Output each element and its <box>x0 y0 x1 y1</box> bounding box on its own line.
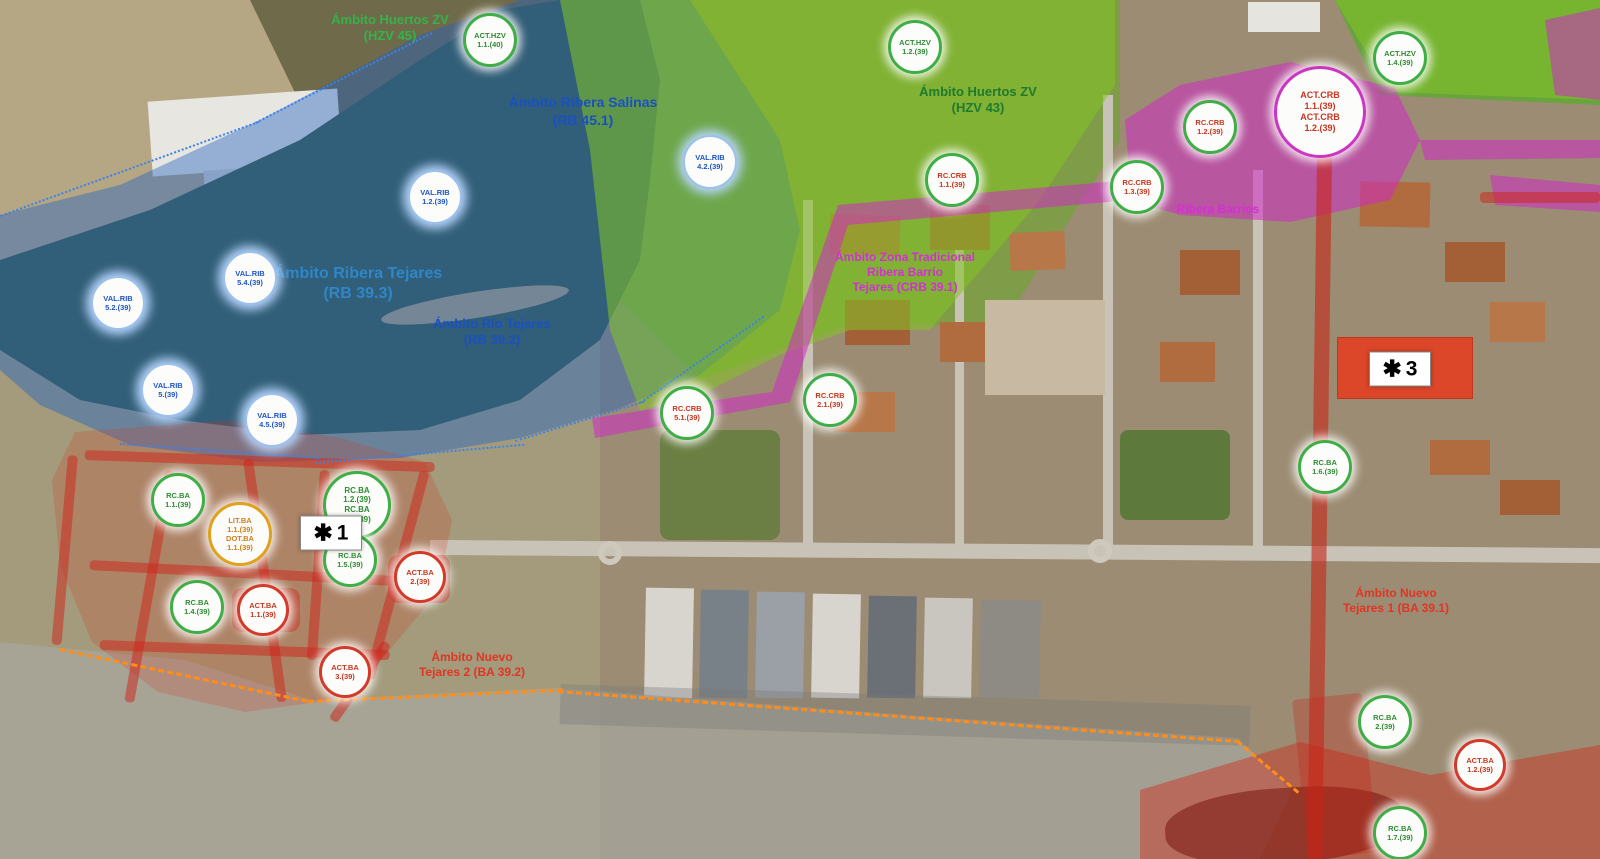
asterisk-icon: ✱ <box>1383 358 1402 381</box>
asterisk-marker[interactable]: ✱3 <box>1369 352 1431 387</box>
asterisk-marker[interactable]: ✱1 <box>300 516 362 551</box>
asterisk-icon: ✱ <box>314 522 333 545</box>
marker-layer: ✱1✱3 <box>0 0 1600 859</box>
marker-number: 1 <box>337 521 349 545</box>
marker-number: 3 <box>1406 357 1418 381</box>
map-canvas[interactable]: Ámbito Huertos ZV(HZV 45)Ámbito Ribera S… <box>0 0 1600 859</box>
